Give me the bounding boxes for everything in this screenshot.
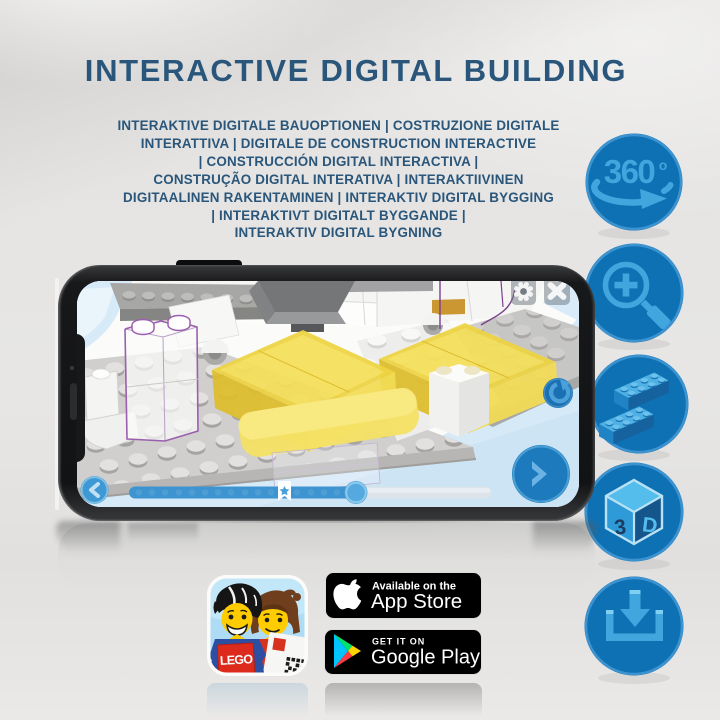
svg-text:GET IT ON: GET IT ON bbox=[372, 637, 425, 647]
svg-text:Google Play: Google Play bbox=[371, 647, 480, 669]
svg-text:D: D bbox=[641, 513, 659, 538]
svg-text:LEGO: LEGO bbox=[220, 652, 254, 668]
svg-text:360: 360 bbox=[604, 153, 655, 190]
svg-text:o: o bbox=[659, 157, 668, 173]
svg-text:App Store: App Store bbox=[371, 590, 462, 613]
